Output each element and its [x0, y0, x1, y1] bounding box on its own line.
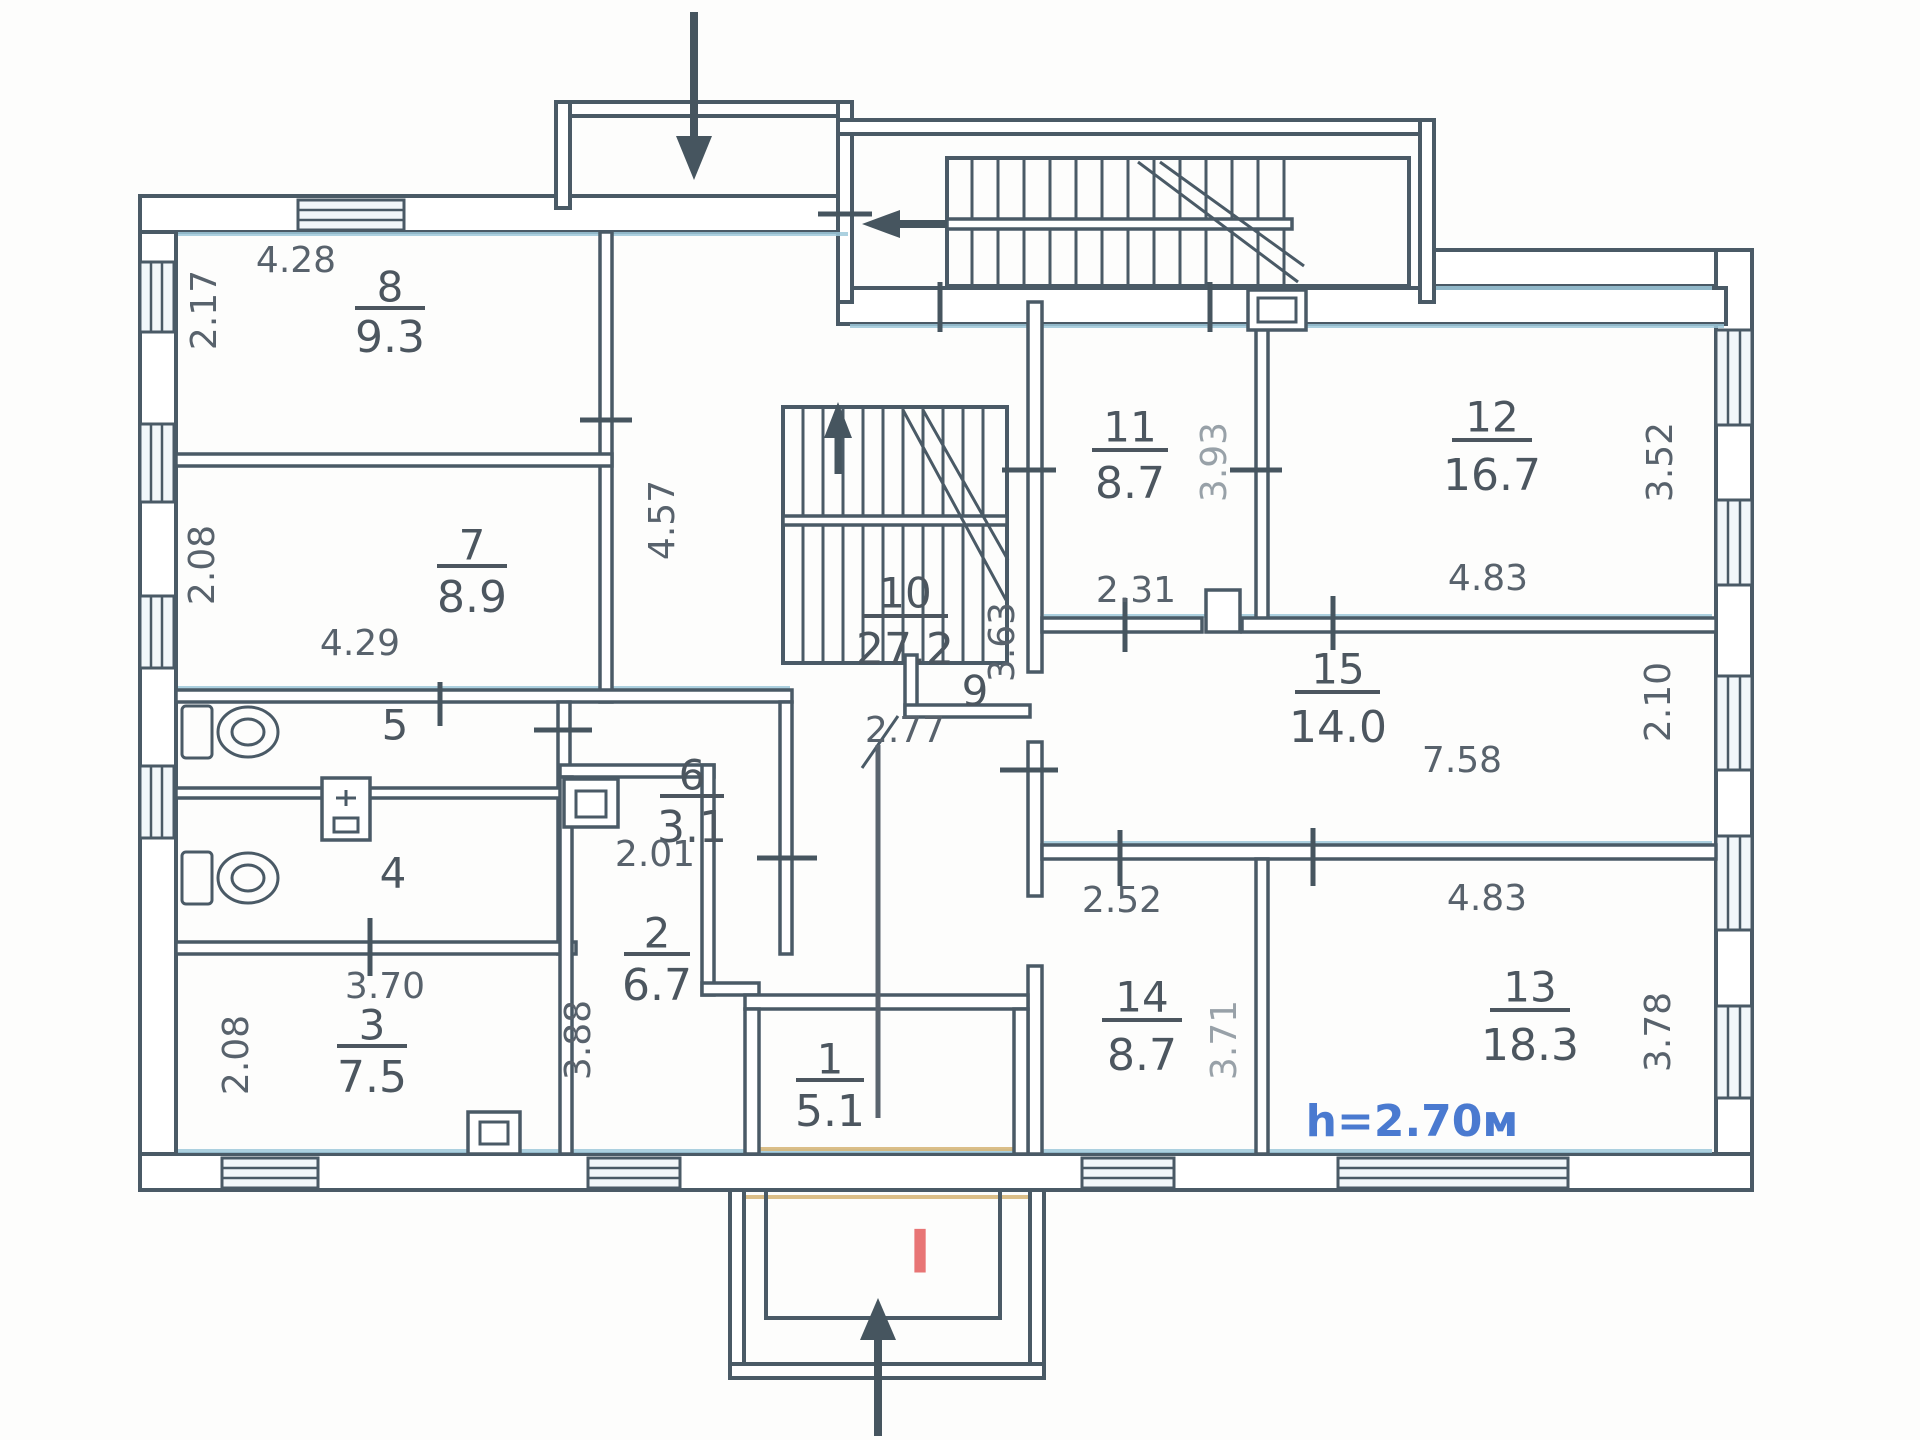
stairwell-right-wall	[1420, 120, 1434, 302]
room7-number: 7	[459, 521, 486, 570]
exterior-stairs-icon	[862, 158, 1304, 286]
room11-area: 8.7	[1095, 458, 1165, 509]
window-left-1	[140, 262, 174, 332]
dim-room2-height: 3.88	[558, 1000, 599, 1080]
wall-room14-right	[1256, 859, 1268, 1154]
stairwell-top-wall	[838, 120, 1434, 134]
room3-label: 3.70 2.08 3 7.5	[216, 966, 425, 1103]
room-labels: 4.28 2.17 8 9.3 2.08 7 8.9 4.29 5 6 3.1 …	[182, 240, 1681, 1288]
wall-hall-right-lower	[1028, 966, 1042, 1154]
toilet-icon-room5	[182, 706, 278, 758]
dim-room8-height: 2.17	[184, 270, 225, 350]
room9-number: 9	[962, 667, 989, 716]
room7-area: 8.9	[437, 572, 507, 623]
room1-label: 1 5.1	[795, 1035, 865, 1138]
wall-room12-bottom	[1242, 618, 1716, 632]
dim-room10-left: 4.57	[642, 480, 683, 560]
room14-area: 8.7	[1107, 1030, 1177, 1081]
wall-left	[140, 196, 176, 1190]
dim-room14-height: 3.71	[1204, 1000, 1245, 1080]
toilet-icon-room4	[182, 852, 278, 904]
window-right-1	[1716, 330, 1752, 425]
window-top	[298, 200, 404, 230]
wall-room8-bottom	[176, 454, 612, 466]
wall-room11-bottom-a	[1042, 618, 1202, 632]
wall-room6-right	[780, 702, 792, 954]
room6-number: 6	[679, 751, 706, 800]
room3-number: 3	[359, 1001, 386, 1050]
door-jamb-room11	[1206, 590, 1240, 632]
dim-room11-height: 3.93	[1194, 422, 1235, 502]
room12-number: 12	[1465, 393, 1518, 442]
wall-hall-stub	[702, 983, 759, 995]
window-right-4	[1716, 836, 1752, 930]
dim-room10-width: 2.77	[865, 710, 945, 751]
room11-number: 11	[1103, 403, 1156, 452]
dim-room8-width: 4.28	[256, 240, 336, 281]
wall-hall-right-upper	[1028, 302, 1042, 672]
room5-number: 5	[382, 701, 409, 750]
dim-room13-width: 4.83	[1447, 878, 1527, 919]
window-right-5	[1716, 1006, 1752, 1098]
room3-area: 7.5	[337, 1052, 407, 1103]
dim-room12-width: 4.83	[1448, 558, 1528, 599]
floor-plan-page: 4.28 2.17 8 9.3 2.08 7 8.9 4.29 5 6 3.1 …	[0, 0, 1920, 1440]
room15-area: 14.0	[1289, 702, 1387, 753]
room8-label: 4.28 2.17 8 9.3	[184, 240, 425, 363]
room4-number: 4	[380, 849, 407, 898]
room15-number: 15	[1311, 645, 1364, 694]
room1-area: 5.1	[795, 1086, 865, 1137]
wall-hall-right-mid	[1028, 742, 1042, 896]
window-bottom-3	[1082, 1158, 1174, 1188]
room8-number: 8	[377, 263, 404, 312]
room1-number: 1	[817, 1035, 844, 1084]
room2-label: 2.01 3.88 2 6.7	[558, 834, 695, 1080]
wall-room4-bottom	[176, 942, 576, 954]
window-bottom-4	[1338, 1158, 1568, 1188]
bottom-porch	[730, 1190, 1044, 1378]
wall-room11-right	[1256, 324, 1268, 630]
wall-room15-bottom	[1042, 845, 1716, 859]
vent-box	[1248, 290, 1306, 330]
sink-icon	[322, 778, 370, 840]
window-left-3	[140, 596, 174, 668]
dim-room15-width: 7.58	[1422, 740, 1502, 781]
dim-room13-height: 3.78	[1638, 992, 1679, 1072]
window-right-2	[1716, 500, 1752, 585]
chimney-box	[468, 1112, 520, 1154]
window-bottom-2	[588, 1158, 680, 1188]
room2-area: 6.7	[622, 960, 692, 1011]
room2-number: 2	[644, 909, 671, 958]
porch-left-wall	[556, 102, 570, 208]
room14-label: 2.52 14 8.7 3.71	[1082, 880, 1245, 1081]
room12-area: 16.7	[1443, 450, 1541, 501]
top-entrance-arrow	[676, 12, 712, 180]
wall-room2-left	[560, 777, 572, 1154]
interior-walls	[176, 232, 1716, 1154]
dim-room2-width: 2.01	[615, 834, 695, 875]
room14-number: 14	[1115, 973, 1168, 1022]
room13-number: 13	[1503, 963, 1556, 1012]
tambour-room1	[745, 995, 1028, 1154]
dim-room12-height: 3.52	[1640, 422, 1681, 502]
window-bottom-1	[222, 1158, 318, 1188]
dim-room3-height: 2.08	[216, 1015, 257, 1095]
closet-room2	[564, 779, 618, 827]
wall-top-left	[140, 196, 852, 232]
room13-area: 18.3	[1481, 1020, 1579, 1071]
dim-room11-width: 2.31	[1096, 570, 1176, 611]
window-right-3	[1716, 676, 1752, 770]
dim-room14-width: 2.52	[1082, 880, 1162, 921]
entrance-number-mark: I	[909, 1218, 931, 1288]
room10-number: 10	[878, 569, 931, 618]
room10-area: 27.2	[856, 624, 954, 675]
exterior-stairwell	[838, 120, 1434, 302]
dimension-ticks	[370, 214, 1333, 976]
room15-label: 15 14.0 7.58 2.10	[1289, 645, 1679, 782]
wall-room2-right	[702, 765, 714, 995]
wall-room7-bottom	[176, 690, 792, 702]
room13-label: 4.83 13 18.3 3.78 h=2.70м	[1306, 878, 1679, 1147]
room8-area: 9.3	[355, 312, 425, 363]
room12-label: 12 16.7 3.52 4.83	[1443, 393, 1681, 600]
room7-label: 2.08 7 8.9 4.29	[182, 521, 507, 665]
ceiling-height-note: h=2.70м	[1306, 1096, 1519, 1147]
dim-room7-height: 2.08	[182, 525, 223, 605]
dim-room15-height: 2.10	[1638, 662, 1679, 742]
room11-label: 11 8.7 3.93 2.31	[1092, 403, 1235, 612]
dim-room7-width: 4.29	[320, 623, 400, 664]
wall-wc-divider	[176, 788, 570, 798]
floor-plan-drawing: 4.28 2.17 8 9.3 2.08 7 8.9 4.29 5 6 3.1 …	[0, 0, 1920, 1440]
window-left-2	[140, 424, 174, 502]
window-left-4	[140, 766, 174, 838]
wall-top-right	[1420, 250, 1752, 286]
porch-top-wall	[556, 102, 850, 116]
